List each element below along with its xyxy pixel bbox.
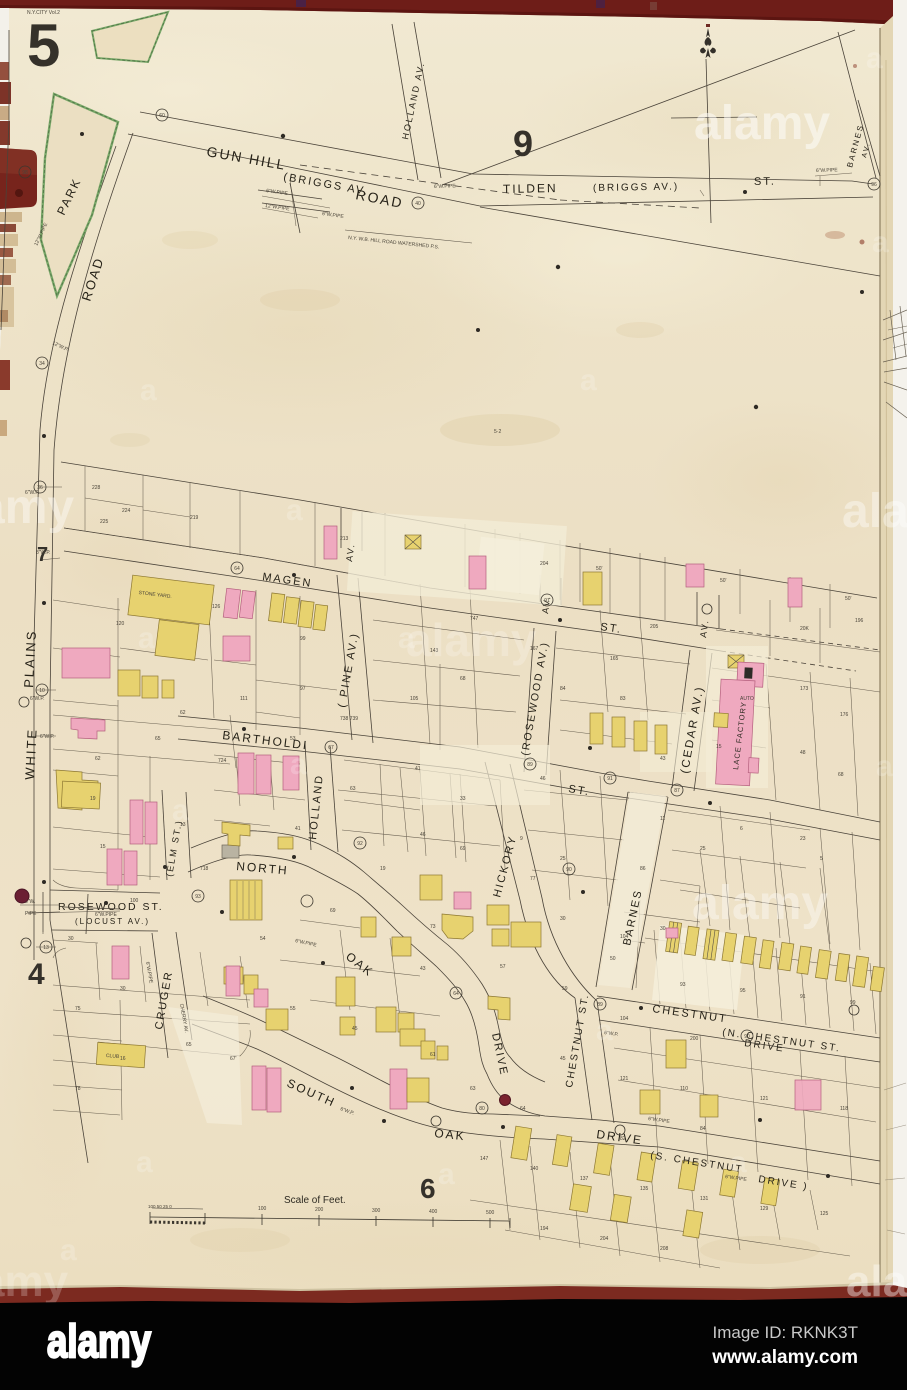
- svg-text:46: 46: [540, 776, 546, 782]
- svg-text:97: 97: [300, 686, 306, 692]
- svg-text:68: 68: [460, 676, 466, 682]
- svg-text:34: 34: [39, 361, 45, 367]
- svg-text:64: 64: [453, 991, 459, 997]
- svg-text:84: 84: [560, 686, 566, 692]
- svg-text:204: 204: [540, 561, 549, 567]
- svg-text:125: 125: [820, 1211, 829, 1217]
- svg-text:43: 43: [660, 756, 666, 762]
- svg-text:91: 91: [607, 776, 613, 782]
- svg-text:205: 205: [650, 624, 659, 630]
- svg-text:a: a: [580, 364, 597, 397]
- svg-text:16: 16: [120, 1056, 126, 1062]
- svg-text:5: 5: [820, 856, 823, 862]
- svg-text:225: 225: [100, 519, 109, 525]
- svg-text:9: 9: [520, 836, 523, 842]
- svg-text:a: a: [398, 622, 415, 655]
- svg-text:121: 121: [620, 1076, 629, 1082]
- svg-text:a: a: [596, 1014, 613, 1047]
- svg-text:738 739: 738 739: [340, 716, 358, 722]
- svg-text:5·2: 5·2: [494, 429, 501, 435]
- svg-text:126: 126: [212, 604, 221, 610]
- svg-text:6"W.P.: 6"W.P.: [30, 696, 44, 702]
- svg-text:84: 84: [700, 1126, 706, 1132]
- svg-text:50': 50': [845, 596, 852, 602]
- svg-text:WHITE: WHITE: [22, 728, 40, 781]
- svg-text:104: 104: [620, 934, 629, 940]
- svg-text:6"W.PIPE: 6"W.PIPE: [816, 167, 839, 174]
- svg-text:111: 111: [240, 696, 248, 702]
- svg-text:91: 91: [544, 598, 550, 604]
- svg-text:194: 194: [540, 1226, 549, 1232]
- svg-text:41: 41: [415, 766, 421, 772]
- svg-text:a: a: [730, 1146, 747, 1179]
- svg-text:95: 95: [740, 988, 746, 994]
- svg-text:105: 105: [410, 696, 419, 702]
- svg-text:50': 50': [720, 578, 727, 584]
- svg-text:Scale of Feet.: Scale of Feet.: [284, 1195, 346, 1206]
- svg-text:69: 69: [330, 908, 336, 914]
- svg-text:500: 500: [486, 1210, 495, 1216]
- svg-text:219: 219: [190, 515, 199, 521]
- svg-text:Image ID: RKNK3T: Image ID: RKNK3T: [713, 1323, 859, 1342]
- svg-text:129: 129: [760, 1206, 769, 1212]
- svg-text:10: 10: [39, 688, 45, 694]
- svg-text:78: 78: [75, 1086, 81, 1092]
- svg-text:140: 140: [530, 1166, 539, 1172]
- svg-text:75: 75: [75, 1006, 81, 1012]
- svg-text:80: 80: [479, 1106, 485, 1112]
- svg-text:25: 25: [700, 846, 706, 852]
- svg-text:63: 63: [470, 1086, 476, 1092]
- svg-text:208: 208: [660, 1246, 669, 1252]
- svg-text:69: 69: [460, 846, 466, 852]
- svg-text:90: 90: [566, 867, 572, 873]
- svg-text:131: 131: [700, 1196, 709, 1202]
- svg-text:33: 33: [460, 796, 466, 802]
- svg-text:213: 213: [340, 536, 349, 542]
- svg-text:55: 55: [290, 1006, 296, 1012]
- svg-text:718: 718: [200, 866, 209, 872]
- svg-text:amy: amy: [0, 1257, 69, 1306]
- svg-text:(BRIGGS AV.): (BRIGGS AV.): [593, 181, 679, 194]
- svg-text:57: 57: [500, 964, 506, 970]
- svg-text:100 50 25 0: 100 50 25 0: [148, 1204, 172, 1209]
- svg-text:30: 30: [120, 986, 126, 992]
- svg-text:87: 87: [674, 788, 680, 794]
- svg-text:alamy: alamy: [842, 485, 907, 538]
- svg-text:228: 228: [92, 485, 101, 491]
- svg-text:89: 89: [597, 1002, 603, 1008]
- svg-text:30: 30: [660, 926, 666, 932]
- svg-text:73: 73: [430, 924, 436, 930]
- svg-text:23: 23: [800, 836, 806, 842]
- svg-text:147: 147: [480, 1156, 489, 1162]
- svg-text:61: 61: [430, 1052, 436, 1058]
- svg-text:173: 173: [800, 686, 809, 692]
- svg-text:92: 92: [357, 841, 363, 847]
- svg-text:a: a: [290, 748, 307, 781]
- svg-text:83: 83: [620, 696, 626, 702]
- svg-text:TILDEN: TILDEN: [503, 181, 558, 196]
- svg-text:43: 43: [420, 966, 426, 972]
- svg-text:a: a: [172, 794, 189, 827]
- svg-text:100: 100: [258, 1206, 267, 1212]
- svg-text:120: 120: [116, 621, 125, 627]
- svg-text:www.alamy.com: www.alamy.com: [711, 1347, 858, 1368]
- svg-text:46: 46: [420, 832, 426, 838]
- svg-text:4: 4: [28, 958, 45, 991]
- svg-text:110: 110: [680, 1086, 688, 1092]
- svg-text:224: 224: [122, 508, 131, 514]
- svg-text:alamy: alamy: [406, 614, 537, 666]
- svg-text:6: 6: [740, 826, 743, 832]
- svg-text:65: 65: [186, 1042, 192, 1048]
- svg-text:176: 176: [840, 712, 849, 718]
- svg-text:89: 89: [527, 762, 533, 768]
- svg-text:59: 59: [562, 986, 568, 992]
- svg-text:N.Y.CITY Vol.2: N.Y.CITY Vol.2: [27, 10, 60, 16]
- svg-text:a: a: [138, 622, 155, 655]
- svg-text:20K: 20K: [800, 626, 810, 632]
- svg-text:121: 121: [760, 1096, 769, 1102]
- svg-text:62: 62: [95, 756, 101, 762]
- svg-text:400: 400: [429, 1209, 438, 1215]
- svg-text:200: 200: [315, 1207, 324, 1213]
- svg-text:45: 45: [352, 1026, 358, 1032]
- svg-text:alamy: alamy: [694, 97, 830, 150]
- svg-text:53: 53: [290, 736, 296, 742]
- svg-text:50: 50: [610, 956, 616, 962]
- svg-text:PLAINS: PLAINS: [21, 629, 39, 688]
- svg-text:30: 30: [560, 916, 566, 922]
- svg-text:6"W.P.: 6"W.P.: [40, 734, 54, 740]
- svg-text:25: 25: [560, 856, 566, 862]
- svg-text:alamy: alamy: [47, 1315, 151, 1367]
- svg-text:a: a: [438, 1158, 455, 1191]
- svg-text:ST.: ST.: [754, 176, 776, 188]
- svg-text:CLUB: CLUB: [106, 1053, 120, 1060]
- svg-text:118: 118: [840, 1106, 848, 1112]
- svg-text:a: a: [876, 750, 893, 783]
- svg-text:41: 41: [295, 826, 301, 832]
- svg-text:45: 45: [560, 1056, 566, 1062]
- svg-text:30: 30: [68, 936, 74, 942]
- svg-text:9: 9: [513, 123, 533, 164]
- svg-text:200: 200: [690, 1036, 699, 1042]
- svg-text:19: 19: [380, 866, 386, 872]
- svg-text:19: 19: [90, 796, 96, 802]
- svg-text:13: 13: [43, 945, 49, 951]
- svg-text:300: 300: [372, 1208, 381, 1214]
- svg-text:196: 196: [855, 618, 864, 624]
- svg-text:PIPE: PIPE: [25, 911, 37, 917]
- svg-text:165: 165: [610, 656, 619, 662]
- svg-text:86: 86: [640, 866, 646, 872]
- svg-text:93: 93: [680, 982, 686, 988]
- svg-text:98: 98: [22, 170, 28, 176]
- svg-text:11: 11: [660, 816, 665, 822]
- svg-text:68: 68: [838, 772, 844, 778]
- svg-text:5: 5: [27, 12, 60, 79]
- svg-text:99: 99: [300, 636, 306, 642]
- svg-text:82: 82: [620, 1136, 626, 1142]
- svg-text:a: a: [286, 494, 303, 527]
- svg-text:204: 204: [600, 1236, 609, 1242]
- svg-text:48: 48: [800, 750, 806, 756]
- svg-text:96: 96: [871, 182, 877, 188]
- svg-text:40: 40: [415, 201, 421, 207]
- svg-text:65: 65: [155, 736, 161, 742]
- svg-text:67': 67': [230, 1056, 237, 1062]
- svg-text:60: 60: [159, 113, 165, 119]
- svg-text:a: a: [872, 226, 889, 259]
- svg-text:6"W.PIPE: 6"W.PIPE: [95, 912, 117, 918]
- svg-text:104: 104: [620, 1016, 629, 1022]
- svg-text:137: 137: [580, 1176, 589, 1182]
- svg-text:a: a: [136, 1146, 153, 1179]
- svg-text:135: 135: [640, 1186, 649, 1192]
- svg-text:15: 15: [100, 844, 106, 850]
- svg-text:6"W.PIPE: 6"W.PIPE: [434, 183, 457, 190]
- svg-text:91: 91: [800, 994, 806, 1000]
- svg-text:6: 6: [420, 1173, 436, 1204]
- svg-text:64: 64: [520, 1106, 526, 1112]
- svg-text:90: 90: [744, 1034, 750, 1040]
- svg-text:a: a: [140, 374, 157, 407]
- svg-text:alamy: alamy: [0, 481, 74, 534]
- svg-text:15: 15: [716, 744, 722, 750]
- svg-text:a: a: [866, 42, 883, 75]
- svg-text:a: a: [60, 1234, 77, 1267]
- svg-text:77: 77: [530, 876, 536, 882]
- svg-text:64: 64: [234, 566, 240, 572]
- svg-text:100: 100: [130, 898, 139, 904]
- svg-text:54: 54: [260, 936, 266, 942]
- svg-text:8"W.P.: 8"W.P.: [36, 550, 50, 556]
- svg-text:724: 724: [218, 758, 227, 764]
- svg-text:93: 93: [195, 894, 201, 900]
- svg-text:alamy: alamy: [692, 877, 828, 930]
- svg-text:62: 62: [180, 710, 186, 716]
- svg-text:50': 50': [596, 566, 603, 572]
- svg-text:63: 63: [350, 786, 356, 792]
- svg-text:AUTO: AUTO: [740, 696, 754, 702]
- svg-text:67: 67: [328, 745, 334, 751]
